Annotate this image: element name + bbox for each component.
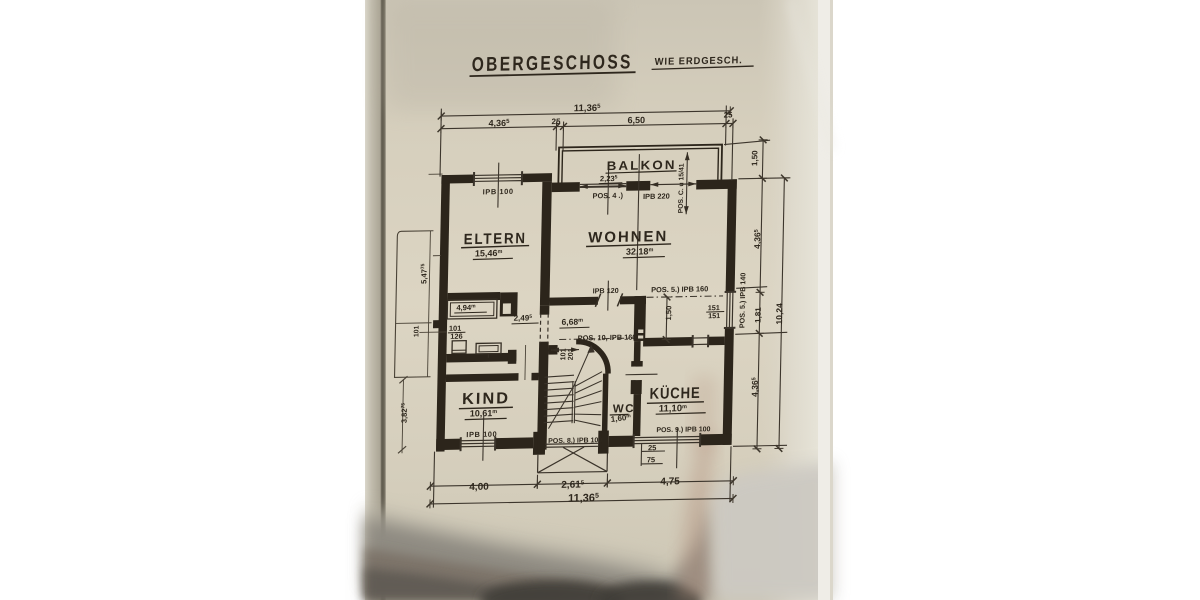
svg-text:WIE ERDGESCH.: WIE ERDGESCH. xyxy=(655,55,743,68)
svg-text:201: 201 xyxy=(566,348,575,360)
svg-text:4,75: 4,75 xyxy=(660,476,680,487)
svg-text:KÜCHE: KÜCHE xyxy=(649,385,700,403)
svg-text:11,365: 11,365 xyxy=(568,492,599,505)
svg-text:10,24: 10,24 xyxy=(774,303,784,325)
svg-text:1,81: 1,81 xyxy=(753,307,762,323)
svg-text:101: 101 xyxy=(413,325,420,337)
svg-text:25: 25 xyxy=(724,110,734,119)
svg-text:25: 25 xyxy=(648,443,657,452)
svg-text:IPB 100: IPB 100 xyxy=(483,187,514,197)
svg-text:POS. 9.) IPB 100: POS. 9.) IPB 100 xyxy=(656,426,710,434)
svg-text:POS. 4 .): POS. 4 .) xyxy=(592,191,623,201)
svg-text:1,50: 1,50 xyxy=(750,150,759,166)
svg-text:POS. 5.) IPB 140: POS. 5.) IPB 140 xyxy=(737,273,747,329)
svg-text:6,50: 6,50 xyxy=(627,115,645,125)
svg-text:POS. 10, IPB 160: POS. 10, IPB 160 xyxy=(578,333,637,343)
svg-text:151: 151 xyxy=(708,311,720,320)
svg-text:IPB 220: IPB 220 xyxy=(643,192,670,201)
svg-text:KIND: KIND xyxy=(462,390,510,408)
svg-text:POS. 8.) IPB 100: POS. 8.) IPB 100 xyxy=(548,437,602,445)
svg-text:IPB 100: IPB 100 xyxy=(466,430,497,440)
svg-text:4,00: 4,00 xyxy=(469,482,489,493)
svg-text:25: 25 xyxy=(551,117,561,126)
svg-text:POS. 5.) IPB 160: POS. 5.) IPB 160 xyxy=(651,284,708,294)
svg-text:126: 126 xyxy=(450,332,463,341)
svg-text:IPB 120: IPB 120 xyxy=(593,286,619,295)
svg-text:75: 75 xyxy=(647,455,656,464)
svg-text:POS. C. u 15/41: POS. C. u 15/41 xyxy=(678,163,686,213)
svg-text:1,50: 1,50 xyxy=(664,306,673,321)
svg-text:WOHNEN: WOHNEN xyxy=(588,228,668,246)
